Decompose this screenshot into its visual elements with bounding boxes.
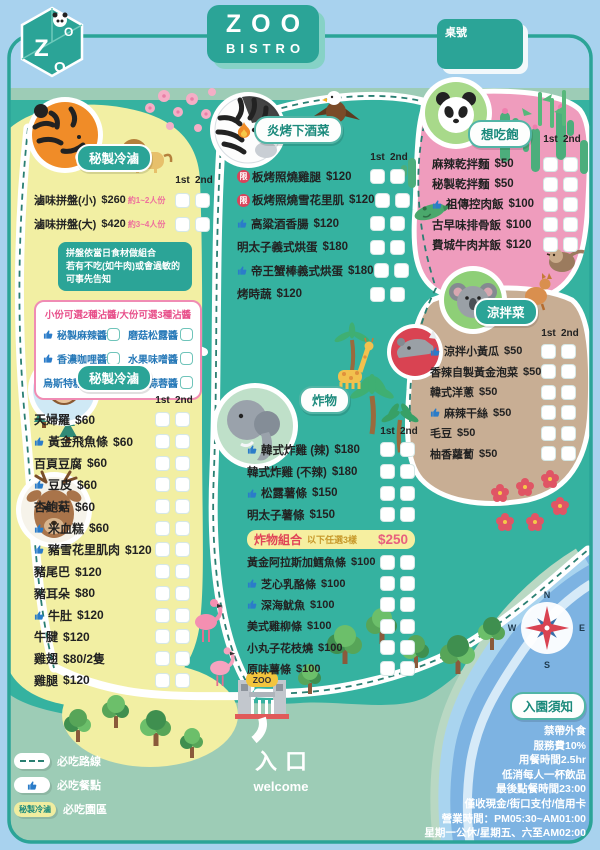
menu-item-row: 古早味排骨飯$100 bbox=[432, 215, 578, 235]
menu-item-row: 帝王蟹棒義式烘蛋$180 bbox=[237, 259, 405, 283]
item-name: 費城牛肉丼飯 bbox=[432, 237, 501, 253]
checkbox-2nd[interactable] bbox=[175, 456, 190, 471]
checkbox-1st[interactable] bbox=[155, 586, 170, 601]
sauce-checkbox[interactable] bbox=[107, 328, 120, 341]
checkbox-1st[interactable] bbox=[541, 364, 556, 379]
fried-rows: 韓式炸雞 (辣)$180韓式炸雞 (不辣)$180松露薯條$150明太子薯條$1… bbox=[247, 439, 415, 526]
checkbox-2nd[interactable] bbox=[390, 216, 405, 231]
item-name: 韓式炸雞 (辣) bbox=[261, 442, 329, 458]
menu-item-row: 柚香蘿蔔$50 bbox=[430, 444, 576, 465]
item-name: 豬雪花里肌肉 bbox=[48, 541, 120, 558]
checkbox-2nd[interactable] bbox=[175, 412, 190, 427]
map-legend: 必吃路線 必吃餐點 秘製冷滷 必吃園區 bbox=[14, 753, 107, 825]
welcome-text: welcome bbox=[226, 779, 336, 794]
entrance-text: 入口 bbox=[226, 744, 336, 776]
logo-letter-o1: O bbox=[54, 59, 66, 76]
item-name: 雞腿 bbox=[34, 672, 58, 689]
item-price: $100 bbox=[296, 663, 320, 675]
checkbox-1st[interactable] bbox=[155, 629, 170, 644]
item-price: $100 bbox=[509, 198, 535, 210]
item-price: $50 bbox=[495, 158, 514, 170]
checkbox-2nd[interactable] bbox=[563, 197, 578, 212]
menu-item-row: 深海魷魚$100 bbox=[247, 594, 415, 615]
thumbs-up-icon bbox=[34, 610, 45, 621]
sauce-name: 秘製麻辣醬 bbox=[57, 327, 107, 342]
item-name: 雞翅 bbox=[34, 650, 58, 667]
menu-item-row: 松露薯條$150 bbox=[247, 482, 415, 504]
menu-item-row: 韓式炸雞 (辣)$180 bbox=[247, 439, 415, 461]
checkbox-1st[interactable] bbox=[155, 499, 170, 514]
combo-banner: 炸物組合 以下任選3樣 $250 bbox=[247, 530, 415, 549]
checkbox-2nd[interactable] bbox=[400, 597, 415, 612]
checkbox-1st[interactable] bbox=[543, 197, 558, 212]
col-2nd: 2nd bbox=[390, 152, 405, 163]
menu-item-row: 米血糕$60 bbox=[34, 517, 190, 539]
checkbox-2nd[interactable] bbox=[400, 661, 415, 676]
item-price: $60 bbox=[75, 413, 95, 427]
section-badge: 炎烤下酒菜 bbox=[254, 116, 343, 144]
section-badge: 想吃飽 bbox=[468, 120, 532, 148]
checkbox-1st[interactable] bbox=[155, 651, 170, 666]
legend-dish: 必吃餐點 bbox=[14, 777, 107, 793]
checkbox-1st[interactable] bbox=[541, 446, 556, 461]
checkbox-2nd[interactable] bbox=[175, 586, 190, 601]
item-price: $50 bbox=[457, 427, 475, 439]
menu-item-row: 明太子薯條$150 bbox=[247, 504, 415, 526]
app-title: ZOO BISTRO bbox=[207, 5, 319, 63]
item-name: 百頁豆腐 bbox=[34, 455, 82, 472]
zoo-bistro-menu: ZOO N E S W Z O O ZOO BISTRO 桌號 秘製冷滷 bbox=[0, 0, 600, 850]
notice-line: 用餐時間2.5hr bbox=[519, 753, 586, 768]
item-name: 原味薯條 bbox=[247, 661, 291, 677]
combo-price: $250 bbox=[378, 532, 408, 547]
checkbox-2nd[interactable] bbox=[400, 576, 415, 591]
item-name: 牛肚 bbox=[48, 607, 72, 624]
col-2nd: 2nd bbox=[400, 426, 415, 437]
section-badge: 涼拌菜 bbox=[474, 298, 538, 326]
checkbox-1st[interactable] bbox=[374, 263, 389, 278]
checkbox-2nd[interactable] bbox=[175, 521, 190, 536]
table-number-field[interactable]: 桌號 bbox=[437, 19, 523, 69]
checkbox-1st[interactable] bbox=[543, 177, 558, 192]
item-price: $150 bbox=[310, 509, 336, 521]
checkbox-1st[interactable] bbox=[380, 464, 395, 479]
thumbs-up-icon bbox=[237, 218, 248, 229]
notice-line: 低消每人一杯飲品 bbox=[502, 768, 586, 783]
logo-letter-z: Z bbox=[34, 35, 49, 62]
cold-rows: 涼拌小黃瓜$50香辣自製黃金泡菜$50韓式洋蔥$50麻辣干絲$50毛豆$50柚香… bbox=[430, 341, 576, 464]
checkbox-1st[interactable] bbox=[175, 193, 190, 208]
menu-item-row: 豬尾巴$120 bbox=[34, 561, 190, 583]
menu-item-row: 原味薯條$100 bbox=[247, 658, 415, 679]
checkbox-1st[interactable] bbox=[155, 412, 170, 427]
checkbox-1st[interactable] bbox=[543, 217, 558, 232]
item-name: 深海魷魚 bbox=[261, 597, 305, 613]
notice-line: 星期一公休/星期五、六至AM02:00 bbox=[424, 826, 586, 841]
checkbox-1st[interactable] bbox=[380, 640, 395, 655]
checkbox-1st[interactable] bbox=[380, 661, 395, 676]
item-name: 板烤照燒雞腿 bbox=[252, 169, 321, 185]
menu-item-row: 烤時蔬$120 bbox=[237, 283, 405, 307]
checkbox-1st[interactable] bbox=[541, 426, 556, 441]
checkbox-1st[interactable] bbox=[380, 486, 395, 501]
col-2nd: 2nd bbox=[175, 395, 190, 406]
thumbs-up-icon bbox=[34, 544, 45, 555]
checkbox-1st[interactable] bbox=[370, 169, 385, 184]
platter-notice: 拼盤依當日食材做組合若有不吃(如牛肉)或會過敏的可事先告知 bbox=[58, 242, 192, 291]
menu-item-row: 牛腱$120 bbox=[34, 626, 190, 648]
item-name: 秘製乾拌麵 bbox=[432, 176, 490, 192]
checkbox-1st[interactable] bbox=[155, 434, 170, 449]
checkbox-1st[interactable] bbox=[370, 240, 385, 255]
menu-item-row: 豆皮$60 bbox=[34, 474, 190, 496]
item-name: 滷味拼盤(小) bbox=[34, 192, 96, 208]
legend-area: 秘製冷滷 必吃園區 bbox=[14, 801, 107, 817]
checkbox-2nd[interactable] bbox=[400, 464, 415, 479]
notice-line: 最後點餐時間23:00 bbox=[496, 782, 586, 797]
menu-item-row: 美式雞柳條$100 bbox=[247, 616, 415, 637]
combo-rows: 黃金阿拉斯加鱈魚條$100芝心乳酪條$100深海魷魚$100美式雞柳條$100小… bbox=[247, 552, 415, 680]
table-number-label: 桌號 bbox=[445, 27, 467, 39]
menu-item-row: 明太子義式烘蛋$180 bbox=[237, 236, 405, 260]
menu-item-row: 麻辣干絲$50 bbox=[430, 403, 576, 424]
item-price: $80 bbox=[75, 586, 95, 600]
checkbox-2nd[interactable] bbox=[390, 240, 405, 255]
checkbox-1st[interactable] bbox=[155, 673, 170, 688]
item-price: $100 bbox=[310, 599, 334, 611]
item-name: 松露薯條 bbox=[261, 485, 307, 501]
menu-item-row: 滷味拼盤(小)$260約1~2人份 bbox=[34, 188, 210, 212]
menu-item-row: 香辣自製黃金泡菜$50 bbox=[430, 362, 576, 383]
col-1st: 1st bbox=[541, 328, 556, 339]
checkbox-2nd[interactable] bbox=[561, 364, 576, 379]
item-name: 祖傳控肉飯 bbox=[446, 196, 504, 212]
menu-item-row: 毛豆$50 bbox=[430, 423, 576, 444]
checkbox-2nd[interactable] bbox=[175, 542, 190, 557]
item-price: $60 bbox=[75, 500, 95, 514]
rice-rows: 麻辣乾拌麵$50秘製乾拌麵$50祖傳控肉飯$100古早味排骨飯$100費城牛肉丼… bbox=[432, 154, 578, 255]
menu-item-row: 豬雪花里肌肉$120 bbox=[34, 539, 190, 561]
note-line: 可事先告知 bbox=[66, 273, 184, 286]
item-price: $260 bbox=[101, 194, 125, 206]
menu-item-row: 小丸子花枝燒$100 bbox=[247, 637, 415, 658]
menu-item-row: 限板烤照燒雪花里肌$120 bbox=[237, 189, 405, 213]
checkbox-1st[interactable] bbox=[370, 216, 385, 231]
checkbox-1st[interactable] bbox=[155, 542, 170, 557]
checkbox-1st[interactable] bbox=[380, 597, 395, 612]
notice-lines: 禁帶外食服務費10%用餐時間2.5hr低消每人一杯飲品最後點餐時間23:00僅收… bbox=[420, 724, 586, 841]
area-badge-icon: 秘製冷滷 bbox=[14, 802, 56, 817]
compass-e: E bbox=[579, 623, 585, 633]
menu-item-row: 杏鮑菇$60 bbox=[34, 496, 190, 518]
item-name: 古早味排骨飯 bbox=[432, 217, 501, 233]
item-price: $120 bbox=[277, 288, 303, 300]
notice-line: 服務費10% bbox=[533, 739, 586, 754]
section-grill: 炎烤下酒菜 1st2nd 限板烤照燒雞腿$120限板烤照燒雪花里肌$120高粱酒… bbox=[237, 116, 405, 306]
col-1st: 1st bbox=[370, 152, 385, 163]
item-price: $50 bbox=[493, 407, 511, 419]
checkbox-2nd[interactable] bbox=[175, 651, 190, 666]
sauce-option: 磨菇松露醬 bbox=[128, 327, 193, 342]
item-price: $120 bbox=[314, 218, 340, 230]
thumbs-up-icon bbox=[247, 578, 258, 589]
checkbox-2nd[interactable] bbox=[400, 507, 415, 522]
logo-letter-o2: O bbox=[64, 25, 73, 39]
item-name: 米血糕 bbox=[48, 520, 84, 537]
item-name: 毛豆 bbox=[430, 425, 452, 441]
item-name: 板烤照燒雪花里肌 bbox=[252, 192, 344, 208]
thumbs-up-icon bbox=[432, 199, 443, 210]
checkbox-1st[interactable] bbox=[541, 385, 556, 400]
checkbox-2nd[interactable] bbox=[561, 385, 576, 400]
thumbs-up-icon bbox=[34, 523, 45, 534]
item-price: $100 bbox=[318, 642, 342, 654]
sauce-option: 秘製麻辣醬 bbox=[43, 327, 120, 342]
item-name: 黃金飛魚條 bbox=[48, 433, 108, 450]
item-name: 黃金阿拉斯加鱈魚條 bbox=[247, 554, 346, 570]
item-price: $100 bbox=[506, 219, 532, 231]
legend-route: 必吃路線 bbox=[14, 753, 107, 769]
checkbox-2nd[interactable] bbox=[563, 217, 578, 232]
thumbs-up-icon bbox=[247, 488, 258, 499]
title-bistro: BISTRO bbox=[221, 41, 305, 56]
checkbox-2nd[interactable] bbox=[394, 263, 409, 278]
col-1st: 1st bbox=[543, 134, 558, 145]
checkbox-1st[interactable] bbox=[155, 456, 170, 471]
menu-item-row: 芝心乳酪條$100 bbox=[247, 573, 415, 594]
item-name: 豬尾巴 bbox=[34, 563, 70, 580]
item-name: 韓式炸雞 (不辣) bbox=[247, 464, 327, 480]
checkbox-2nd[interactable] bbox=[390, 169, 405, 184]
item-name: 韓式洋蔥 bbox=[430, 384, 474, 400]
menu-item-row: 高粱酒香腸$120 bbox=[237, 212, 405, 236]
item-name: 高粱酒香腸 bbox=[251, 216, 309, 232]
checkbox-2nd[interactable] bbox=[390, 287, 405, 302]
checkbox-2nd[interactable] bbox=[195, 217, 210, 232]
checkbox-2nd[interactable] bbox=[563, 157, 578, 172]
item-name: 香辣自製黃金泡菜 bbox=[430, 364, 518, 380]
menu-item-row: 豬耳朵$80 bbox=[34, 583, 190, 605]
checkbox-2nd[interactable] bbox=[561, 446, 576, 461]
entrance-label: 入口 welcome bbox=[226, 744, 336, 794]
checkbox-1st[interactable] bbox=[380, 555, 395, 570]
section-notice: 入園須知 禁帶外食服務費10%用餐時間2.5hr低消每人一杯飲品最後點餐時間23… bbox=[420, 692, 586, 841]
compass-w: W bbox=[508, 623, 517, 633]
thumbs-up-icon bbox=[34, 479, 45, 490]
checkbox-2nd[interactable] bbox=[563, 237, 578, 252]
section-luwei-platter: 秘製冷滷 1st2nd 滷味拼盤(小)$260約1~2人份滷味拼盤(大)$420… bbox=[34, 144, 210, 400]
checkbox-1st[interactable] bbox=[175, 217, 190, 232]
checkbox-1st[interactable] bbox=[370, 287, 385, 302]
fire-icon bbox=[237, 122, 251, 138]
checkbox-2nd[interactable] bbox=[175, 434, 190, 449]
item-price: $100 bbox=[321, 578, 345, 590]
menu-item-row: 限板烤照燒雞腿$120 bbox=[237, 165, 405, 189]
item-name: 滷味拼盤(大) bbox=[34, 216, 96, 232]
note-line: 若有不吃(如牛肉)或會過敏的 bbox=[66, 260, 184, 273]
notice-line: 營業時間：PM05:30~AM01:00 bbox=[442, 812, 586, 827]
checkbox-2nd[interactable] bbox=[400, 486, 415, 501]
note-line: 拼盤依當日食材做組合 bbox=[66, 247, 184, 260]
item-name: 明太子薯條 bbox=[247, 507, 305, 523]
item-price: $60 bbox=[89, 521, 109, 535]
thumbs-up-icon bbox=[247, 599, 258, 610]
checkbox-2nd[interactable] bbox=[561, 344, 576, 359]
col-1st: 1st bbox=[175, 175, 190, 186]
notice-badge: 入園須知 bbox=[510, 692, 586, 720]
checkbox-1st[interactable] bbox=[543, 237, 558, 252]
item-price: $120 bbox=[125, 543, 152, 557]
item-price: $50 bbox=[479, 448, 497, 460]
sauce-title: 小份可選2種沾醬/大份可選3種沾醬 bbox=[43, 307, 193, 321]
thumbs-up-icon bbox=[43, 329, 54, 340]
sauce-checkbox[interactable] bbox=[180, 328, 193, 341]
item-price: $180 bbox=[334, 444, 360, 456]
menu-item-row: 費城牛肉丼飯$120 bbox=[432, 235, 578, 255]
col-2nd: 2nd bbox=[561, 328, 576, 339]
item-name: 芝心乳酪條 bbox=[261, 576, 316, 592]
section-badge: 炸物 bbox=[299, 386, 350, 414]
checkbox-1st[interactable] bbox=[541, 405, 556, 420]
sauce-name: 磨菇松露醬 bbox=[128, 327, 180, 342]
checkbox-2nd[interactable] bbox=[175, 564, 190, 579]
title-zoo: ZOO bbox=[216, 12, 310, 37]
menu-item-row: 麻辣乾拌麵$50 bbox=[432, 154, 578, 174]
item-price: $120 bbox=[506, 239, 532, 251]
col-2nd: 2nd bbox=[195, 175, 210, 186]
thumbs-up-icon bbox=[34, 436, 45, 447]
item-price: $120 bbox=[75, 565, 102, 579]
compass-s: S bbox=[544, 660, 550, 670]
item-price: $120 bbox=[63, 673, 90, 687]
thumbs-up-icon bbox=[430, 346, 441, 357]
compass-n: N bbox=[544, 590, 551, 600]
checkbox-2nd[interactable] bbox=[400, 640, 415, 655]
item-name: 麻辣干絲 bbox=[444, 405, 488, 421]
checkbox-1st[interactable] bbox=[375, 193, 390, 208]
item-price: $100 bbox=[307, 620, 331, 632]
item-serving-note: 約3~4人份 bbox=[128, 219, 166, 230]
checkbox-2nd[interactable] bbox=[175, 608, 190, 623]
item-name: 杏鮑菇 bbox=[34, 498, 70, 515]
item-price: $60 bbox=[113, 435, 133, 449]
item-price: $180 bbox=[332, 466, 358, 478]
item-name: 明太子義式烘蛋 bbox=[237, 239, 318, 255]
item-name: 牛腱 bbox=[34, 628, 58, 645]
checkbox-2nd[interactable] bbox=[175, 629, 190, 644]
item-name: 美式雞柳條 bbox=[247, 618, 302, 634]
item-name: 小丸子花枝燒 bbox=[247, 640, 313, 656]
col-1st: 1st bbox=[380, 426, 395, 437]
checkbox-1st[interactable] bbox=[155, 521, 170, 536]
item-price: $60 bbox=[87, 456, 107, 470]
checkbox-1st[interactable] bbox=[543, 157, 558, 172]
item-price: $50 bbox=[523, 366, 541, 378]
item-price: $120 bbox=[326, 171, 352, 183]
checkbox-2nd[interactable] bbox=[175, 499, 190, 514]
item-price: $80/2隻 bbox=[63, 650, 105, 667]
dashed-route-icon bbox=[14, 753, 50, 769]
checkbox-1st[interactable] bbox=[380, 442, 395, 457]
menu-item-row: 滷味拼盤(大)$420約3~4人份 bbox=[34, 212, 210, 236]
menu-item-row: 韓式洋蔥$50 bbox=[430, 382, 576, 403]
thumbs-up-icon bbox=[14, 777, 50, 793]
grill-rows: 限板烤照燒雞腿$120限板烤照燒雪花里肌$120高粱酒香腸$120明太子義式烘蛋… bbox=[237, 165, 405, 306]
menu-item-row: 祖傳控肉飯$100 bbox=[432, 194, 578, 214]
checkbox-1st[interactable] bbox=[155, 564, 170, 579]
checkbox-2nd[interactable] bbox=[195, 193, 210, 208]
checkbox-2nd[interactable] bbox=[175, 477, 190, 492]
notice-line: 禁帶外食 bbox=[544, 724, 586, 739]
checkbox-2nd[interactable] bbox=[400, 442, 415, 457]
checkbox-1st[interactable] bbox=[541, 344, 556, 359]
item-price: $100 bbox=[351, 556, 375, 568]
limited-icon: 限 bbox=[237, 194, 250, 207]
menu-item-row: 天婦羅$60 bbox=[34, 409, 190, 431]
col-2nd: 2nd bbox=[563, 134, 578, 145]
menu-item-row: 韓式炸雞 (不辣)$180 bbox=[247, 461, 415, 483]
menu-item-row: 雞翅$80/2隻 bbox=[34, 648, 190, 670]
platter-rows: 滷味拼盤(小)$260約1~2人份滷味拼盤(大)$420約3~4人份 bbox=[34, 188, 210, 236]
item-price: $420 bbox=[101, 218, 125, 230]
item-price: $180 bbox=[348, 265, 374, 277]
item-price: $120 bbox=[63, 630, 90, 644]
menu-item-row: 牛肚$120 bbox=[34, 604, 190, 626]
thumbs-up-icon bbox=[43, 353, 54, 364]
checkbox-1st[interactable] bbox=[155, 477, 170, 492]
item-price: $50 bbox=[479, 386, 497, 398]
menu-item-row: 秘製乾拌麵$50 bbox=[432, 174, 578, 194]
limited-icon: 限 bbox=[237, 170, 250, 183]
checkbox-2nd[interactable] bbox=[395, 193, 410, 208]
checkbox-2nd[interactable] bbox=[400, 555, 415, 570]
legend-area-label: 必吃園區 bbox=[63, 801, 107, 817]
menu-item-row: 百頁豆腐$60 bbox=[34, 452, 190, 474]
thumbs-up-icon bbox=[430, 407, 441, 418]
thumbs-up-icon bbox=[247, 444, 258, 455]
combo-title: 炸物組合 bbox=[254, 531, 302, 548]
thumbs-up-icon bbox=[237, 265, 248, 276]
checkbox-2nd[interactable] bbox=[561, 405, 576, 420]
legend-route-label: 必吃路線 bbox=[57, 753, 101, 769]
section-fried: 炸物 1st2nd 韓式炸雞 (辣)$180韓式炸雞 (不辣)$180松露薯條$… bbox=[247, 386, 415, 680]
col-1st: 1st bbox=[155, 395, 170, 406]
section-rice: 想吃飽 1st2nd 麻辣乾拌麵$50秘製乾拌麵$50祖傳控肉飯$100古早味排… bbox=[432, 120, 578, 255]
checkbox-1st[interactable] bbox=[380, 576, 395, 591]
checkbox-2nd[interactable] bbox=[175, 673, 190, 688]
combo-subtitle: 以下任選3樣 bbox=[307, 533, 357, 546]
item-price: $180 bbox=[323, 241, 349, 253]
item-price: $60 bbox=[77, 478, 97, 492]
checkbox-1st[interactable] bbox=[380, 507, 395, 522]
notice-line: 僅收現金/街口支付/信用卡 bbox=[465, 797, 586, 812]
item-price: $50 bbox=[504, 345, 522, 357]
section-cold: 涼拌菜 1st2nd 涼拌小黃瓜$50香辣自製黃金泡菜$50韓式洋蔥$50麻辣干… bbox=[430, 298, 576, 464]
checkbox-1st[interactable] bbox=[155, 608, 170, 623]
menu-item-row: 雞腿$120 bbox=[34, 669, 190, 691]
checkbox-1st[interactable] bbox=[380, 619, 395, 634]
checkbox-2nd[interactable] bbox=[561, 426, 576, 441]
item-name: 天婦羅 bbox=[34, 411, 70, 428]
menu-item-row: 黃金阿拉斯加鱈魚條$100 bbox=[247, 552, 415, 573]
item-name: 柚香蘿蔔 bbox=[430, 446, 474, 462]
menu-item-row: 黃金飛魚條$60 bbox=[34, 431, 190, 453]
checkbox-2nd[interactable] bbox=[400, 619, 415, 634]
item-price: $50 bbox=[495, 178, 514, 190]
checkbox-2nd[interactable] bbox=[563, 177, 578, 192]
section-badge: 秘製冷滷 bbox=[76, 364, 152, 392]
legend-dish-label: 必吃餐點 bbox=[57, 777, 101, 793]
